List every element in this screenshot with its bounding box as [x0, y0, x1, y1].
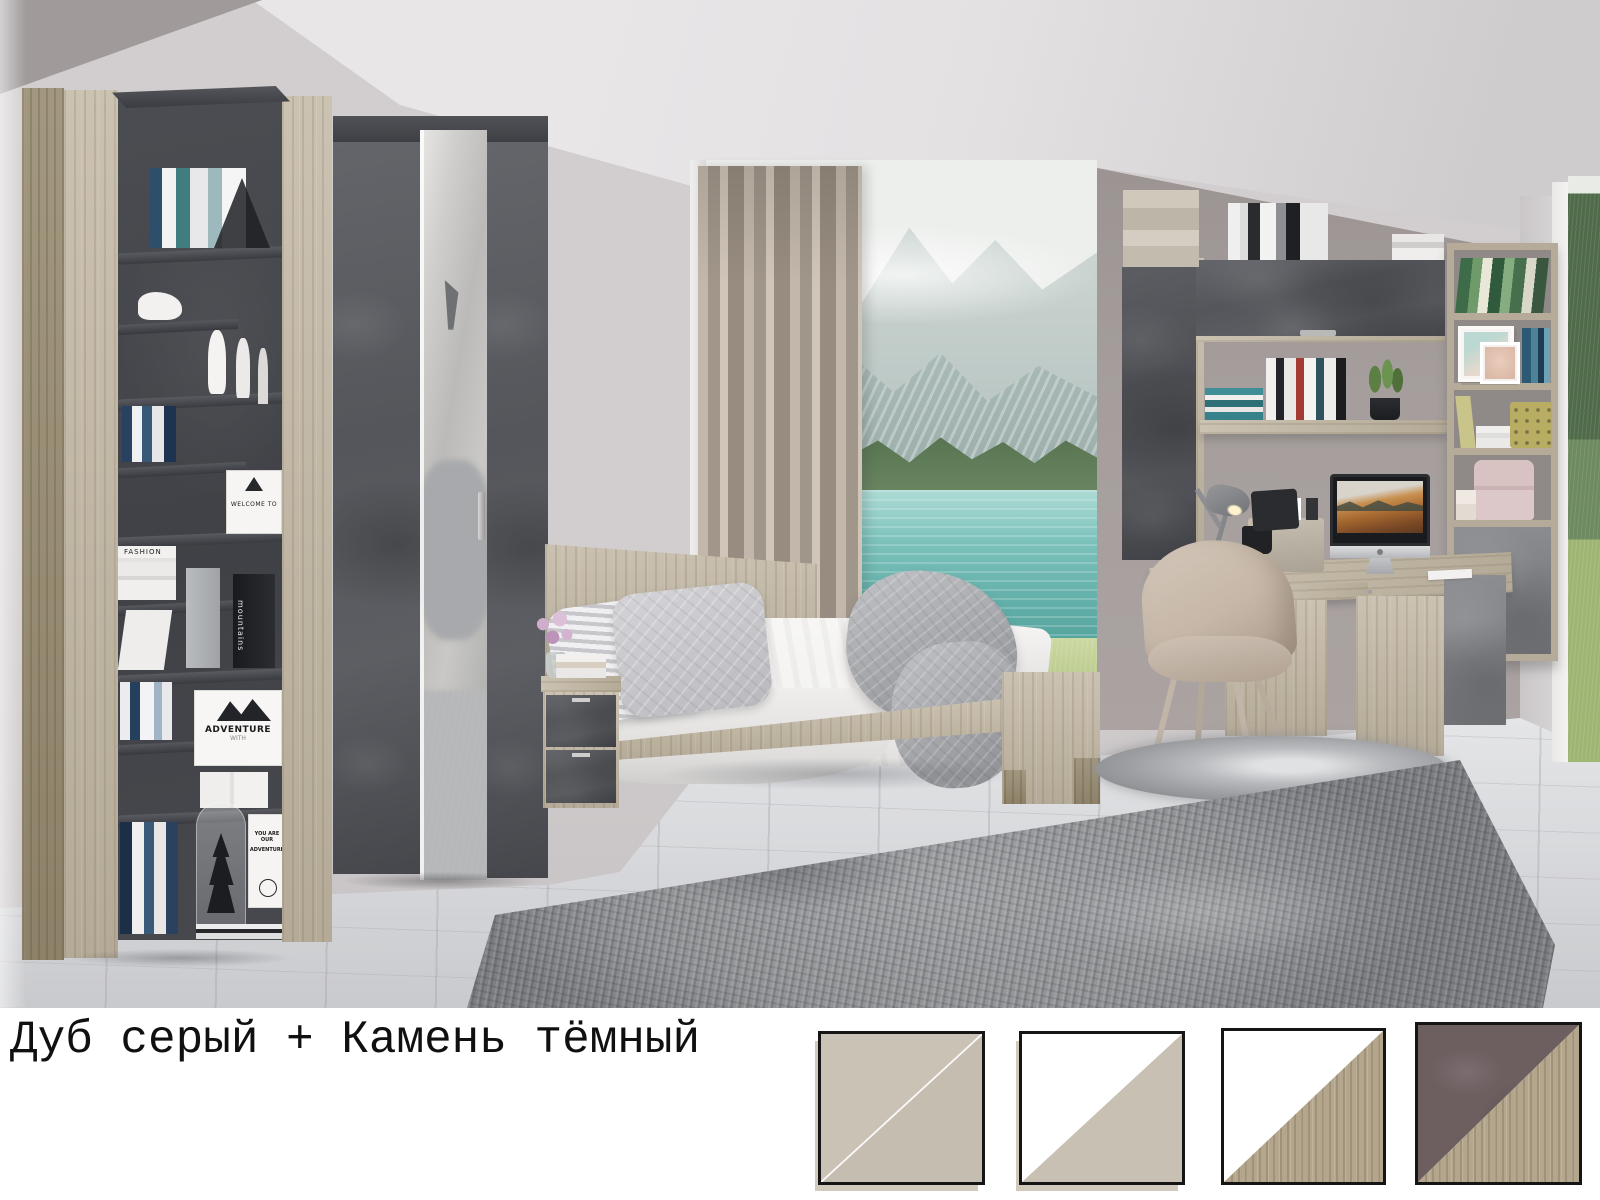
imac-stand: [1366, 558, 1394, 574]
welcome-card: WELCOME TO: [226, 470, 282, 534]
plant-leaves: [1360, 348, 1410, 400]
cubby-shelf: [1454, 520, 1551, 527]
mountain-logo-icon: [245, 477, 263, 491]
imac-chin: [1330, 546, 1430, 558]
fashion-books-stack: FASHION: [118, 546, 176, 600]
bed-shadow: [600, 756, 1080, 796]
long-shelf: [1200, 420, 1447, 434]
mirror-handle: [478, 492, 485, 540]
white-vases: [208, 330, 226, 394]
geo-tree-icon: [207, 833, 235, 913]
canyon-ridge: [1337, 499, 1423, 511]
desk-panel-right: [1356, 596, 1444, 756]
white-organizers: [200, 772, 268, 808]
plant-pot: [1370, 398, 1400, 420]
yellow-leaning-book: [1455, 396, 1475, 448]
you-adventure-card: YOU ARE OUR ADVENTURE: [248, 814, 286, 908]
flat-books-stack: [196, 924, 292, 939]
chair-seat: [1148, 636, 1292, 682]
you-card-line2: ADVENTURE: [249, 847, 285, 853]
left-wall-corner: [0, 0, 262, 94]
mirror-reflection-blanket: [420, 460, 487, 640]
mirror-reflection-lamp: [438, 280, 472, 330]
cloche-decor: [196, 802, 246, 928]
flower-bouquet: [531, 606, 579, 658]
swatch-beige-beige: [818, 1031, 985, 1185]
mountain-art-icon: [205, 699, 271, 721]
mirror-edge-highlight: [420, 130, 424, 880]
caption-strip: Дуб серый + Камень тёмный: [0, 1008, 1600, 1200]
drawer-handle: [572, 753, 590, 757]
books-vertical-row: [1266, 358, 1346, 420]
drawer-handle: [572, 698, 590, 702]
adventure-sign-sub: WITH: [195, 735, 281, 742]
nightstand-drawer: [546, 695, 616, 747]
bookshelf-outer-side: [22, 88, 64, 960]
wall-cabinet-tall: [1122, 267, 1196, 560]
white-leaning-book: [118, 610, 172, 670]
cubby-shelf: [1454, 448, 1551, 455]
adventure-sign-text: ADVENTURE: [195, 725, 281, 735]
tablet-stand: [1251, 488, 1300, 531]
fashion-book-text: FASHION: [124, 548, 176, 556]
paper-stacks: [1123, 190, 1199, 267]
you-card-line1: YOU ARE OUR: [249, 831, 285, 843]
room-render: WELCOME TO FASHION mountains ADVENTURE W…: [0, 0, 1600, 1008]
wire-basket: [1510, 402, 1552, 448]
books-navy-row: [122, 406, 176, 462]
apple-logo-icon: [1377, 549, 1383, 555]
picture-frame-small: [1480, 342, 1520, 384]
books-flat-stacks: [1205, 388, 1263, 420]
books-small-row: [120, 682, 172, 740]
grey-design-book: [186, 568, 220, 668]
swatch-white-oak: [1221, 1028, 1386, 1185]
adventure-sign: ADVENTURE WITH: [194, 690, 282, 766]
blue-books: [1522, 328, 1550, 383]
bookshelf-pillar-left: [64, 90, 118, 958]
left-light-glow: [0, 0, 26, 1008]
books-on-nightstand: [556, 654, 606, 678]
wardrobe-shadow: [333, 872, 573, 894]
welcome-card-text: WELCOME TO: [227, 501, 281, 508]
mountains-book-text: mountains: [236, 600, 245, 642]
swatch-stone-oak: [1415, 1022, 1582, 1185]
desk-side-cabinet: [1444, 575, 1506, 725]
frame-print-peach: [1485, 347, 1515, 379]
green-books: [1455, 258, 1549, 313]
books-on-cabinet: [1228, 203, 1328, 260]
nightstand-drawer: [546, 750, 616, 803]
wall-cabinet-top: [1196, 260, 1445, 338]
caption-text: Дуб серый + Камень тёмный: [10, 1014, 700, 1066]
round-stamp-icon: [259, 879, 277, 897]
wardrobe-door-left: [333, 142, 420, 874]
pink-hat-boxes: [1474, 460, 1534, 520]
imac-screen: [1330, 474, 1430, 546]
right-window-view: [1568, 176, 1600, 762]
swatch-divider-line: [821, 1034, 982, 1182]
wall-cabinet-bottom-lip: [1196, 336, 1445, 342]
bookshelf-shadow: [30, 946, 330, 970]
imac-wallpaper: [1337, 481, 1423, 533]
imac: [1330, 474, 1430, 578]
swatch-white-beige: [1019, 1031, 1185, 1185]
white-mini-boxes: [1456, 490, 1476, 520]
wardrobe-door-right: [487, 142, 548, 878]
books-bottom-left: [120, 822, 178, 934]
cubby-shelf: [1454, 383, 1551, 390]
books-stack-small: [1392, 234, 1444, 260]
catalog-image: WELCOME TO FASHION mountains ADVENTURE W…: [0, 0, 1600, 1200]
mountains-book: mountains: [233, 574, 275, 668]
bookshelf-pillar-right: [282, 96, 332, 942]
nightstand-top: [541, 676, 621, 692]
wardrobe-mirror: [420, 130, 487, 880]
mirror-reflection-rug: [420, 690, 487, 880]
cubby-shelf: [1454, 313, 1551, 320]
pillow-grey-quilted: [610, 580, 774, 719]
